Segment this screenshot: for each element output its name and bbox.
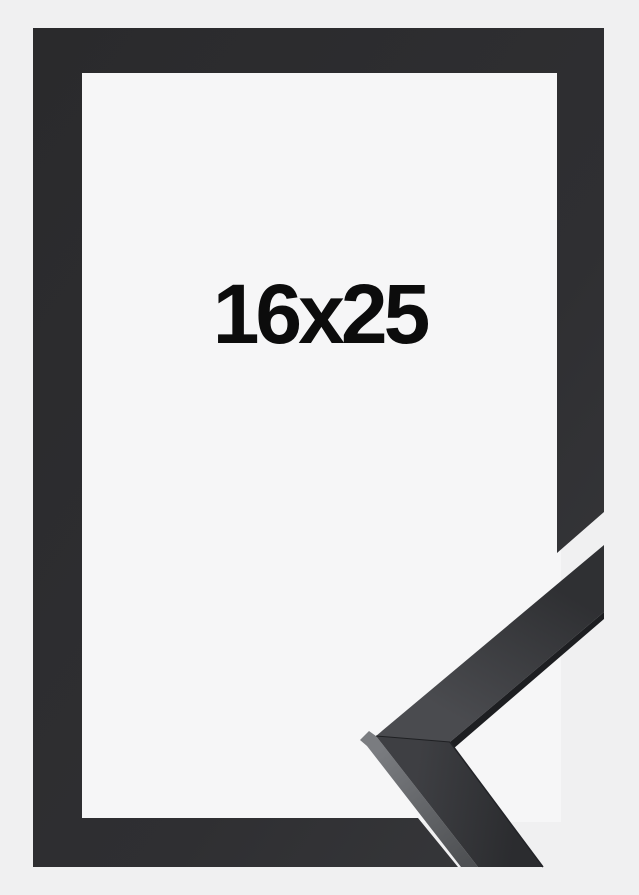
size-label: 16x25 [82,272,557,356]
product-photo: 16x25 [0,0,639,895]
frame-illustration [0,0,639,895]
